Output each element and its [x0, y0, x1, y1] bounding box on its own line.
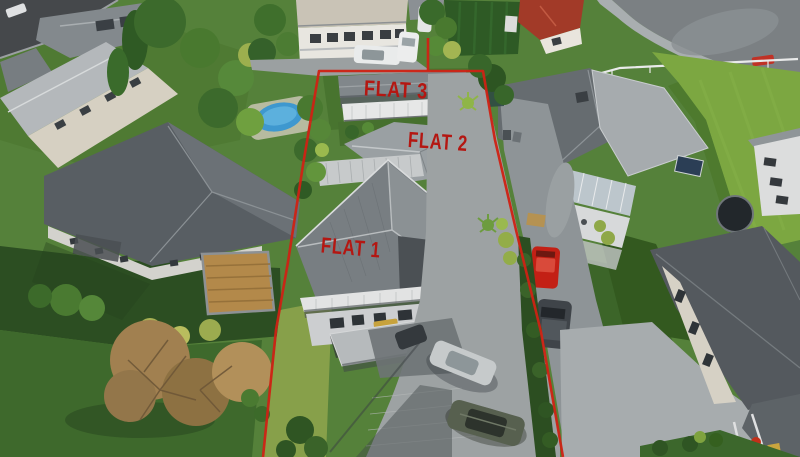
trampoline [717, 196, 753, 232]
aerial-photo-scene: FLAT 3 FLAT 2 FLAT 1 [0, 0, 800, 457]
aerial-photo: FLAT 3 FLAT 2 FLAT 1 [0, 0, 800, 457]
flat-1-label: FLAT 1 [320, 232, 382, 262]
pergola-roof [202, 252, 274, 314]
white-van [396, 31, 419, 63]
flat-3-label: FLAT 3 [363, 75, 428, 103]
flat-2-label: FLAT 2 [407, 127, 469, 156]
